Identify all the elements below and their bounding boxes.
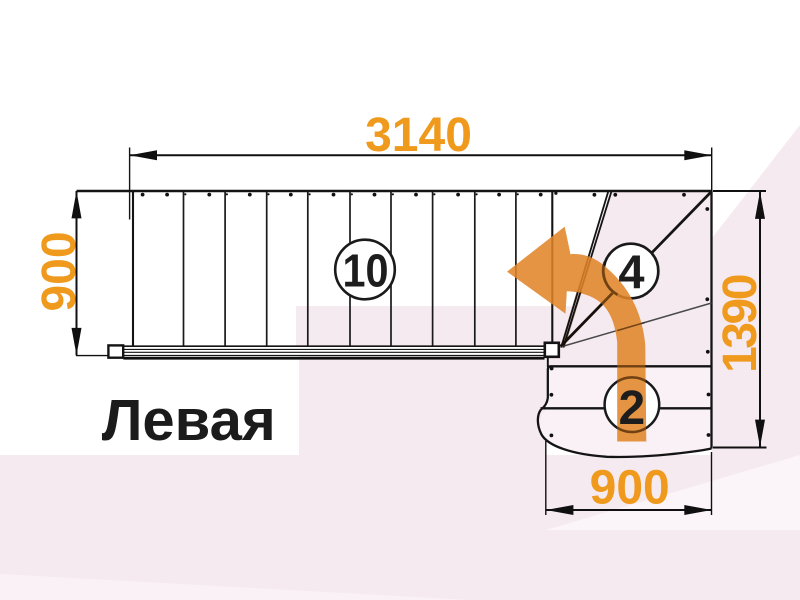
svg-text:1390: 1390 bbox=[714, 275, 767, 373]
svg-text:900: 900 bbox=[33, 231, 86, 311]
svg-text:900: 900 bbox=[590, 462, 670, 515]
svg-text:2: 2 bbox=[619, 382, 646, 435]
svg-text:Левая: Левая bbox=[102, 388, 276, 453]
svg-text:10: 10 bbox=[342, 246, 388, 298]
svg-text:4: 4 bbox=[618, 245, 644, 298]
svg-text:3140: 3140 bbox=[365, 109, 472, 162]
